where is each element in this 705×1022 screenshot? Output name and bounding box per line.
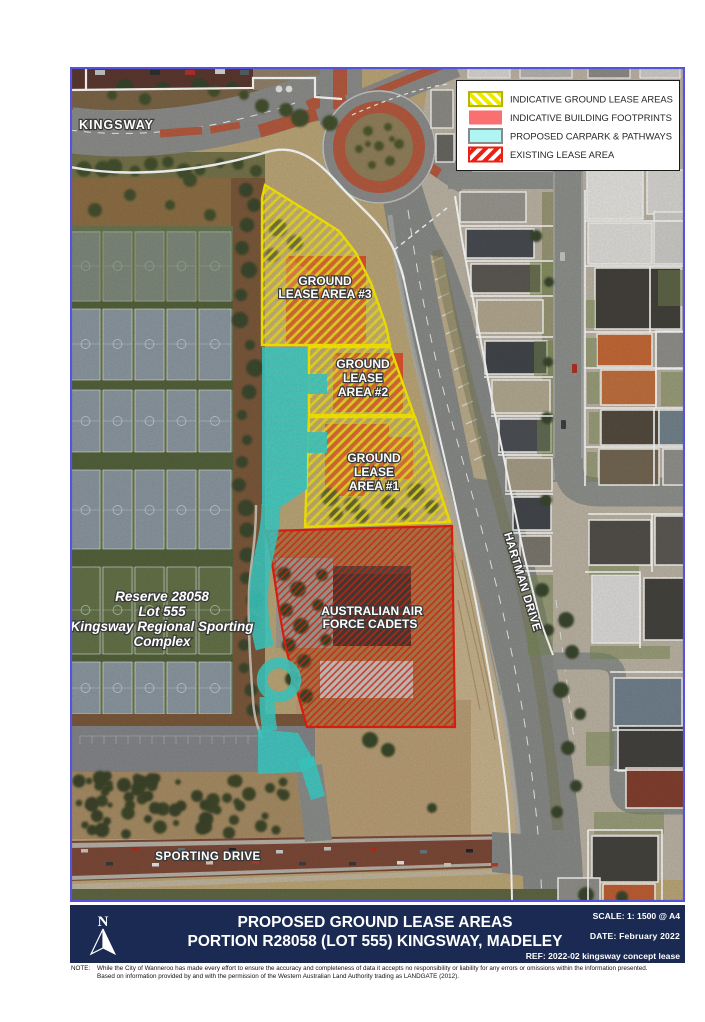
svg-text:EXISTING LEASE AREA: EXISTING LEASE AREA [510,149,615,160]
svg-text:Reserve 28058: Reserve 28058 [115,589,209,604]
svg-text:AUSTRALIAN AIR: AUSTRALIAN AIR [321,604,423,618]
svg-text:Kingsway Regional Sporting: Kingsway Regional Sporting [70,619,254,634]
svg-text:Lot 555: Lot 555 [138,604,186,619]
svg-text:AREA #2: AREA #2 [338,385,389,399]
svg-text:LEASE AREA #3: LEASE AREA #3 [278,287,371,301]
svg-text:INDICATIVE BUILDING FOOTPRINTS: INDICATIVE BUILDING FOOTPRINTS [510,112,672,123]
svg-text:FORCE CADETS: FORCE CADETS [323,617,418,631]
svg-text:GROUND: GROUND [336,357,390,371]
svg-text:GROUND: GROUND [298,274,352,288]
svg-text:GROUND: GROUND [347,451,401,465]
svg-text:Complex: Complex [133,634,191,649]
svg-text:SPORTING DRIVE: SPORTING DRIVE [155,851,260,863]
svg-text:INDICATIVE GROUND LEASE AREAS: INDICATIVE GROUND LEASE AREAS [510,94,673,105]
svg-text:PROPOSED CARPARK & PATHWAYS: PROPOSED CARPARK & PATHWAYS [510,131,672,142]
svg-text:LEASE: LEASE [343,371,383,385]
svg-text:AREA #1: AREA #1 [349,479,400,493]
svg-text:KINGSWAY: KINGSWAY [79,118,154,132]
svg-text:LEASE: LEASE [354,465,394,479]
svg-text:N: N [98,914,109,930]
